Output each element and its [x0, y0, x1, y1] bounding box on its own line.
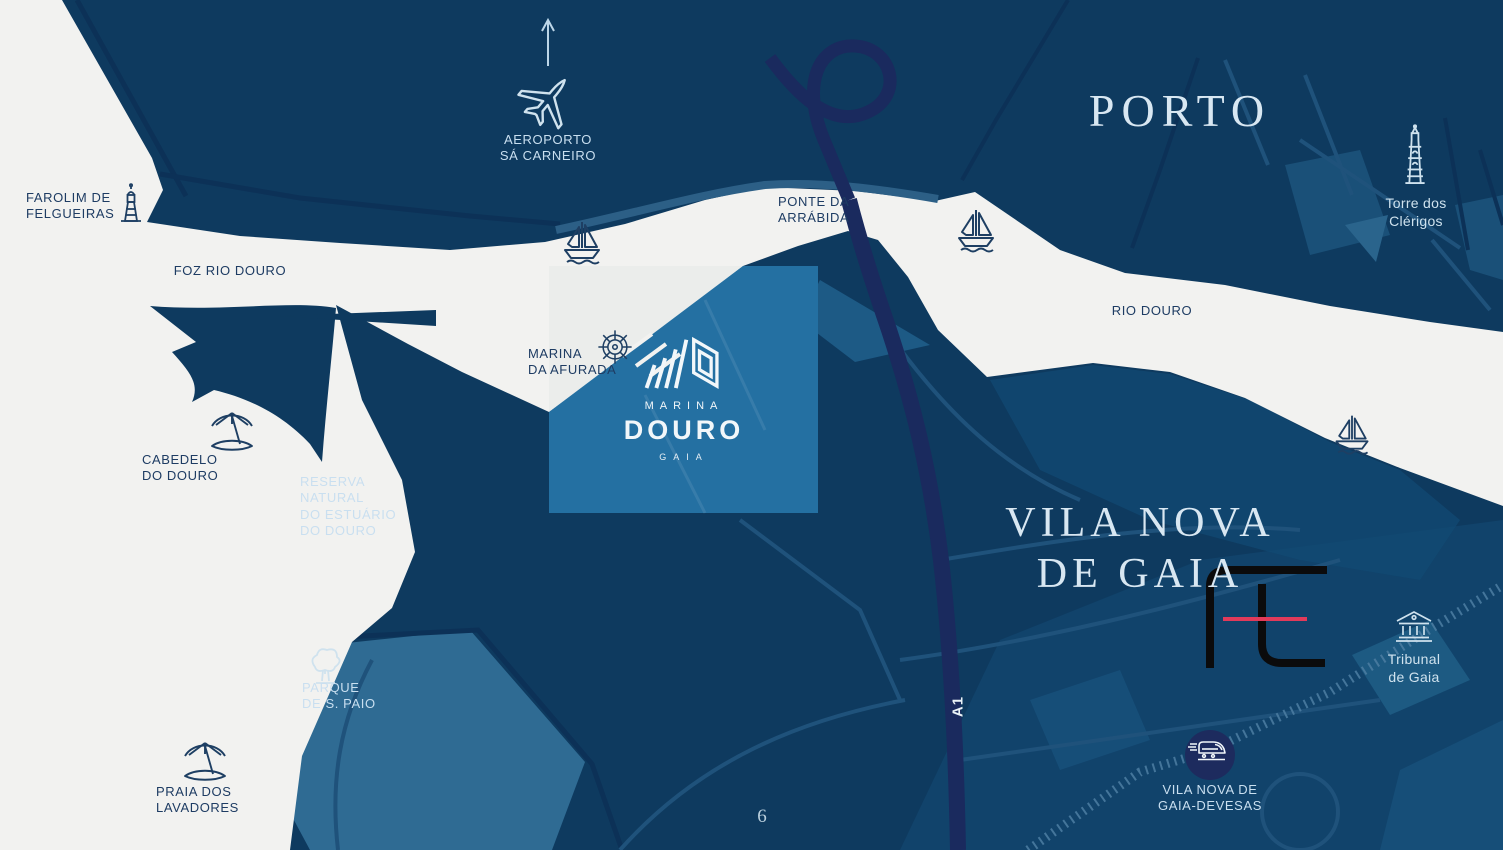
praia-line1: PRAIA DOS	[156, 784, 231, 799]
tribunal-line2: de Gaia	[1388, 669, 1439, 685]
torre-line1: Torre dos	[1385, 195, 1446, 211]
poi-torre-label: Torre dos Clérigos	[1358, 194, 1474, 230]
region-title-vila-nova-de-gaia: VILA NOVA DE GAIA	[975, 498, 1305, 600]
devesas-line1: VILA NOVA DE	[1162, 782, 1257, 797]
rio-douro-text: RIO DOURO	[1112, 303, 1193, 318]
marina-afurada-line1: MARINA	[528, 346, 582, 361]
airplane-icon	[516, 68, 580, 132]
highway-label-a1: A1	[950, 687, 967, 727]
logo-douro-text: DOURO	[624, 415, 745, 445]
poi-ponte-label: PONTE DA ARRÁBIDA	[778, 194, 849, 227]
sailboat-icon	[952, 206, 1000, 254]
vila-nova-line2: DE GAIA	[1037, 551, 1243, 597]
logo-brand-line2: DOURO	[624, 415, 745, 446]
aeroporto-line1: AEROPORTO	[504, 132, 592, 147]
vila-nova-line1: VILA NOVA	[1005, 500, 1274, 546]
cabedelo-line1: CABEDELO	[142, 452, 218, 467]
poi-aeroporto: AEROPORTO SÁ CARNEIRO	[488, 12, 608, 165]
beach-umbrella-icon	[205, 408, 259, 454]
logo-brand-line3: GAIA	[659, 452, 709, 462]
marina-douro-logo: MARINA DOURO GAIA	[604, 330, 764, 462]
poi-aeroporto-label: AEROPORTO SÁ CARNEIRO	[500, 132, 596, 165]
water-label-rio-douro: RIO DOURO	[1090, 303, 1214, 319]
porto-text: PORTO	[1089, 85, 1271, 136]
sailboat-icon	[1330, 412, 1374, 456]
poi-parque-label: PARQUE DE S. PAIO	[302, 680, 376, 713]
farolim-line2: FELGUEIRAS	[26, 206, 114, 221]
farolim-line1: FAROLIM DE	[26, 190, 111, 205]
ponte-line2: ARRÁBIDA	[778, 210, 849, 225]
parque-line1: PARQUE	[302, 680, 360, 695]
foz-text: FOZ RIO DOURO	[174, 263, 287, 278]
reserva-line2: NATURAL	[300, 490, 364, 505]
page-number: 6	[750, 806, 774, 828]
tower-icon	[1398, 124, 1432, 190]
aeroporto-line2: SÁ CARNEIRO	[500, 148, 596, 163]
courthouse-icon	[1392, 608, 1436, 644]
sailboat-icon	[558, 218, 606, 266]
torre-line2: Clérigos	[1389, 213, 1443, 229]
cabedelo-line2: DO DOURO	[142, 468, 218, 483]
praia-line2: LAVADORES	[156, 800, 239, 815]
beach-umbrella-icon	[178, 738, 232, 784]
poi-cabedelo-label: CABEDELO DO DOURO	[142, 452, 218, 485]
map-page: AEROPORTO SÁ CARNEIRO FAROLIM DE FELGUEI…	[0, 0, 1503, 850]
region-title-porto: PORTO	[1040, 84, 1320, 137]
marina-douro-mark-icon	[636, 330, 732, 392]
lighthouse-icon	[118, 183, 144, 225]
reserva-line3: DO ESTUÁRIO	[300, 507, 396, 522]
a1-text: A1	[950, 696, 967, 717]
poi-praia-label: PRAIA DOS LAVADORES	[156, 784, 239, 817]
ponte-line1: PONTE DA	[778, 194, 849, 209]
logo-marina-text: MARINA	[645, 400, 724, 412]
train-icon	[1184, 729, 1236, 781]
logo-brand-line1: MARINA	[645, 400, 724, 412]
water-label-foz: FOZ RIO DOURO	[155, 263, 305, 279]
page-number-text: 6	[757, 806, 767, 827]
poi-devesas-label: VILA NOVA DE GAIA-DEVESAS	[1138, 782, 1282, 815]
logo-gaia-text: GAIA	[659, 452, 709, 462]
devesas-line2: GAIA-DEVESAS	[1158, 798, 1262, 813]
poi-tribunal-label: Tribunal de Gaia	[1366, 650, 1462, 686]
poi-farolim-label: FAROLIM DE FELGUEIRAS	[26, 190, 114, 223]
reserva-line4: DO DOURO	[300, 523, 376, 538]
north-arrow-icon	[503, 12, 593, 68]
parque-line2: DE S. PAIO	[302, 696, 376, 711]
poi-reserva-label: RESERVA NATURAL DO ESTUÁRIO DO DOURO	[300, 474, 396, 539]
tribunal-line1: Tribunal	[1388, 651, 1440, 667]
reserva-line1: RESERVA	[300, 474, 365, 489]
